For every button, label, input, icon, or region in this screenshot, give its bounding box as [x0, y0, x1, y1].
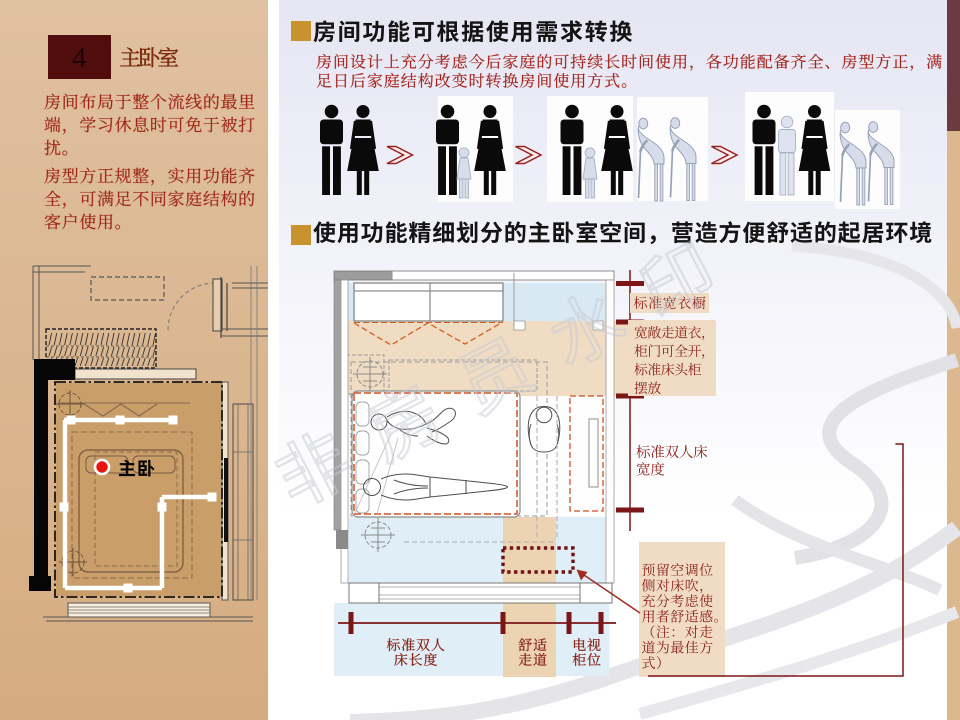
svg-text:4: 4 — [72, 42, 87, 74]
